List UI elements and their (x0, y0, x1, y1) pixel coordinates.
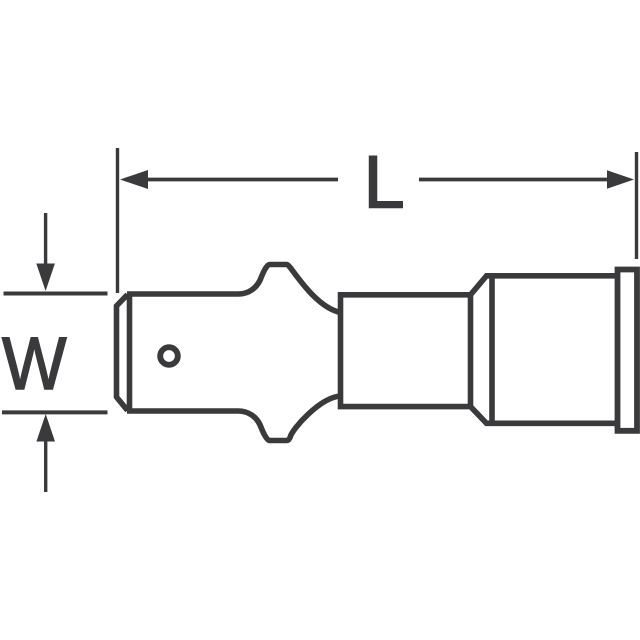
svg-text:L: L (364, 140, 405, 223)
svg-text:W: W (2, 322, 67, 405)
